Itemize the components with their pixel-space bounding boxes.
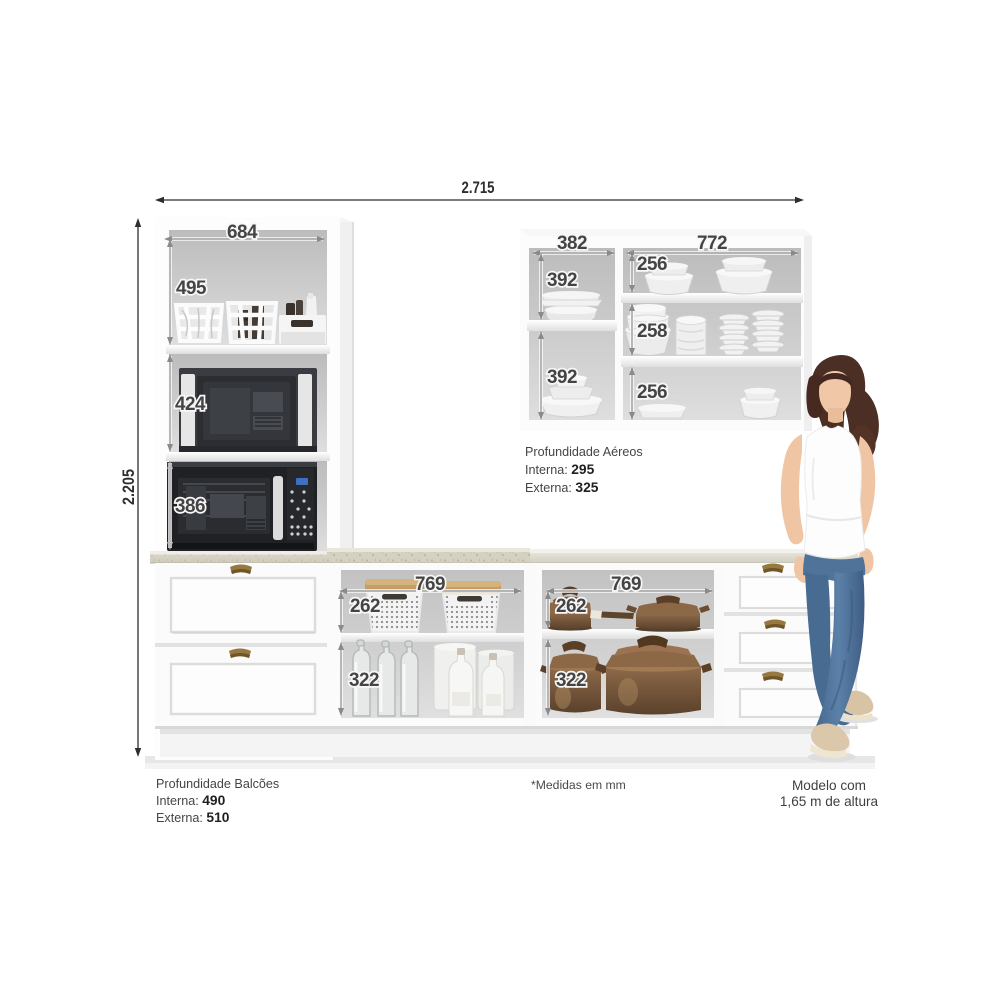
svg-text:495: 495 — [176, 278, 207, 299]
svg-text:769: 769 — [415, 574, 445, 595]
svg-text:2.205: 2.205 — [120, 469, 138, 505]
svg-text:322: 322 — [349, 670, 379, 691]
svg-text:1,65 m de altura: 1,65 m de altura — [780, 794, 879, 809]
svg-text:Externa: 325: Externa: 325 — [525, 480, 599, 495]
svg-text:322: 322 — [556, 670, 586, 691]
svg-text:Externa: 510: Externa: 510 — [156, 810, 230, 825]
svg-text:256: 256 — [637, 254, 667, 275]
svg-text:772: 772 — [697, 233, 727, 254]
svg-text:386: 386 — [175, 496, 205, 517]
svg-text:256: 256 — [637, 382, 667, 403]
svg-text:392: 392 — [547, 367, 577, 388]
svg-text:*Medidas em mm: *Medidas em mm — [531, 778, 626, 792]
svg-text:684: 684 — [227, 222, 258, 243]
svg-text:262: 262 — [556, 596, 586, 617]
svg-text:424: 424 — [175, 394, 206, 415]
svg-text:769: 769 — [611, 574, 641, 595]
svg-text:2.715: 2.715 — [462, 179, 495, 197]
svg-text:262: 262 — [350, 596, 380, 617]
svg-text:392: 392 — [547, 270, 577, 291]
svg-text:Interna: 490: Interna: 490 — [156, 793, 226, 808]
svg-text:Profundidade Aéreos: Profundidade Aéreos — [525, 445, 643, 459]
svg-text:382: 382 — [557, 233, 587, 254]
svg-text:258: 258 — [637, 321, 667, 342]
svg-text:Modelo com: Modelo com — [792, 778, 866, 793]
svg-text:Interna: 295: Interna: 295 — [525, 462, 595, 477]
svg-text:Profundidade Balcões: Profundidade Balcões — [156, 777, 279, 791]
